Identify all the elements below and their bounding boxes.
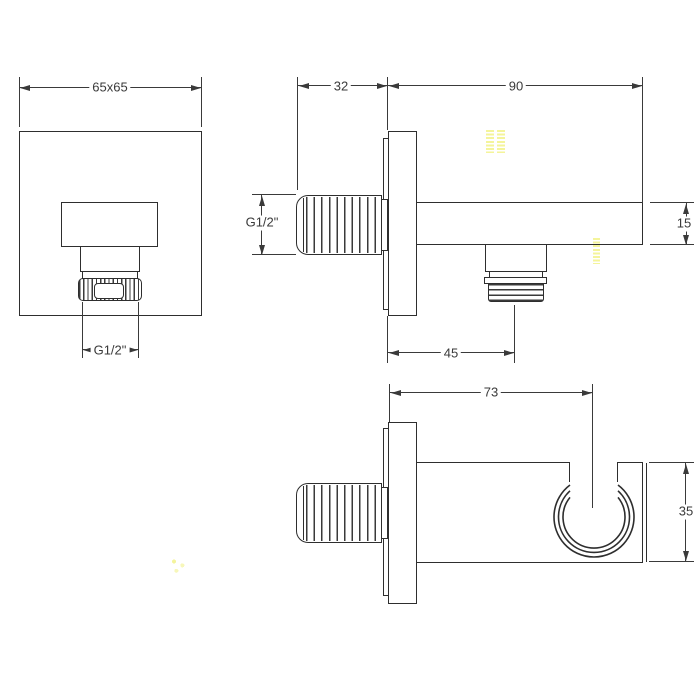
watermark-artifact [168,556,188,574]
knurl-texture [306,485,381,541]
bottom-view: 73 35 [0,0,700,700]
handset-clip-arcs [540,440,670,580]
knurled-inlet-bottom [296,483,382,543]
watermark-artifact [593,238,600,264]
extension-line [649,561,694,562]
extension-line [389,384,390,422]
extension-line [649,462,694,463]
technical-drawing-canvas: 65x65 G1/2" 32 90 [0,0,700,700]
arrowhead-right [582,390,592,396]
arrowhead-up [683,464,689,474]
arrowhead-left [391,390,401,396]
holder-offset-label: 73 [481,386,501,401]
watermark-artifact [486,130,494,153]
extension-line [592,384,593,508]
wall-flange-bottom [388,422,417,604]
inlet-face-line [303,486,304,540]
watermark-artifact [497,130,505,153]
arrowhead-down [683,551,689,561]
body-width-label: 35 [676,505,696,520]
